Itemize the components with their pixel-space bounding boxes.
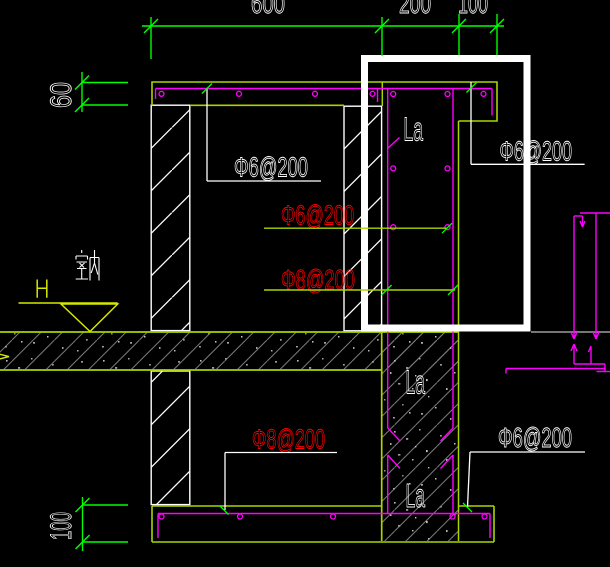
svg-text:200: 200: [399, 0, 431, 19]
svg-text:Φ6@200: Φ6@200: [234, 152, 308, 183]
svg-text:La: La: [406, 364, 426, 401]
svg-text:100: 100: [458, 0, 488, 19]
svg-text:Φ8@200: Φ8@200: [252, 424, 325, 455]
svg-text:La: La: [406, 477, 426, 514]
svg-text:100: 100: [45, 512, 78, 540]
svg-text:60: 60: [45, 82, 78, 108]
svg-text:Φ6@200: Φ6@200: [498, 422, 572, 453]
svg-text:Φ6@200: Φ6@200: [281, 200, 354, 231]
svg-text:600: 600: [251, 0, 285, 19]
svg-text:La: La: [404, 111, 424, 148]
svg-text:Φ6@200: Φ6@200: [500, 136, 573, 167]
